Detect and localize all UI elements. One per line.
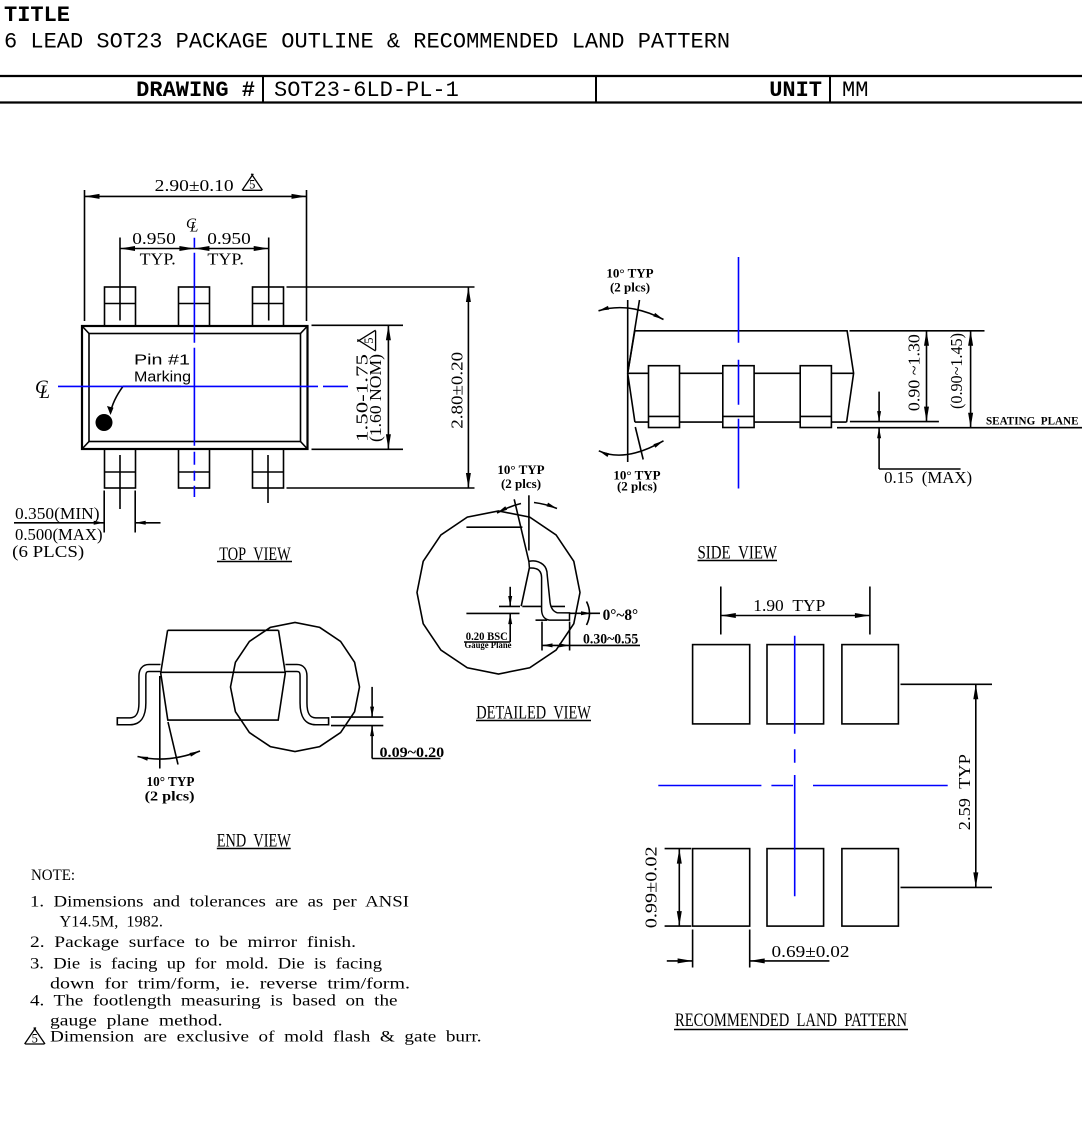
- svg-text:DETAILED VIEW: DETAILED VIEW: [476, 703, 591, 724]
- svg-text:(1.60 NOM): (1.60 NOM): [366, 354, 385, 442]
- svg-text:UNIT: UNIT: [769, 78, 822, 103]
- svg-text:L: L: [189, 220, 198, 236]
- svg-text:5: 5: [362, 337, 376, 343]
- svg-text:0.950: 0.950: [132, 229, 176, 248]
- svg-text:0°~8°: 0°~8°: [603, 607, 639, 624]
- svg-text:(2 plcs): (2 plcs): [145, 790, 195, 805]
- svg-text:0.90 ~1.30: 0.90 ~1.30: [905, 334, 924, 411]
- svg-text:(2 plcs): (2 plcs): [610, 280, 650, 295]
- svg-text:END VIEW: END VIEW: [217, 831, 291, 852]
- svg-text:Dimension are exclusive of mol: Dimension are exclusive of mold flash & …: [50, 1029, 482, 1046]
- svg-text:SIDE VIEW: SIDE VIEW: [698, 543, 778, 564]
- svg-text:TITLE: TITLE: [4, 3, 70, 28]
- svg-text:5: 5: [249, 177, 255, 191]
- svg-text:5: 5: [32, 1031, 38, 1045]
- svg-text:10° TYP: 10° TYP: [606, 266, 653, 281]
- svg-text:NOTE:: NOTE:: [31, 867, 75, 884]
- svg-text:1. Dimensions and tolerances a: 1. Dimensions and tolerances are as per …: [30, 894, 409, 911]
- svg-text:SEATING PLANE: SEATING PLANE: [986, 414, 1079, 428]
- svg-text:Y14.5M, 1982.: Y14.5M, 1982.: [60, 914, 164, 931]
- svg-text:SOT23-6LD-PL-1: SOT23-6LD-PL-1: [274, 78, 459, 103]
- svg-text:TYP.: TYP.: [207, 250, 244, 269]
- svg-text:0.15 (MAX): 0.15 (MAX): [884, 468, 972, 487]
- svg-text:2. Package surface to be mirro: 2. Package surface to be mirror finish.: [30, 934, 356, 951]
- svg-text:6 LEAD SOT23 PACKAGE OUTLINE &: 6 LEAD SOT23 PACKAGE OUTLINE & RECOMMEND…: [4, 30, 730, 55]
- svg-text:0.30~0.55: 0.30~0.55: [583, 632, 638, 648]
- svg-text:2.59 TYP: 2.59 TYP: [955, 754, 974, 830]
- svg-text:2.80±0.20: 2.80±0.20: [447, 352, 466, 429]
- svg-text:10° TYP: 10° TYP: [147, 775, 195, 790]
- svg-text:TYP.: TYP.: [140, 250, 176, 269]
- svg-text:(0.90~1.45): (0.90~1.45): [947, 333, 966, 409]
- svg-text:0.950: 0.950: [207, 229, 251, 248]
- svg-text:Marking: Marking: [134, 369, 191, 386]
- svg-text:MM: MM: [842, 78, 868, 103]
- svg-text:0.09~0.20: 0.09~0.20: [380, 745, 445, 761]
- svg-text:0.69±0.02: 0.69±0.02: [772, 942, 850, 961]
- svg-text:3. Die is facing up for mold.: 3. Die is facing up for mold. Die is fac…: [30, 956, 382, 973]
- svg-text:TOP VIEW: TOP VIEW: [219, 544, 291, 565]
- svg-text:(2 plcs): (2 plcs): [617, 479, 657, 494]
- svg-text:RECOMMENDED LAND PATTERN: RECOMMENDED LAND PATTERN: [675, 1010, 907, 1031]
- svg-text:2.90±0.10: 2.90±0.10: [155, 176, 234, 195]
- svg-text:down for trim/form, ie. revers: down for trim/form, ie. reverse trim/for…: [50, 976, 410, 993]
- svg-text:(2 plcs): (2 plcs): [501, 476, 541, 491]
- svg-text:Pin #1: Pin #1: [134, 352, 190, 369]
- svg-text:0.350(MIN): 0.350(MIN): [15, 504, 100, 523]
- svg-text:L: L: [39, 382, 51, 403]
- svg-text:DRAWING #: DRAWING #: [136, 78, 255, 103]
- svg-text:0.99±0.02: 0.99±0.02: [642, 846, 661, 928]
- svg-text:gauge plane method.: gauge plane method.: [50, 1013, 223, 1030]
- svg-text:Gauge Plane: Gauge Plane: [465, 641, 512, 651]
- svg-text:(6 PLCS): (6 PLCS): [12, 542, 84, 561]
- svg-text:1.90 TYP: 1.90 TYP: [753, 596, 825, 615]
- svg-text:10° TYP: 10° TYP: [497, 462, 544, 477]
- svg-text:4. The footlength measuring is: 4. The footlength measuring is based on …: [30, 993, 398, 1010]
